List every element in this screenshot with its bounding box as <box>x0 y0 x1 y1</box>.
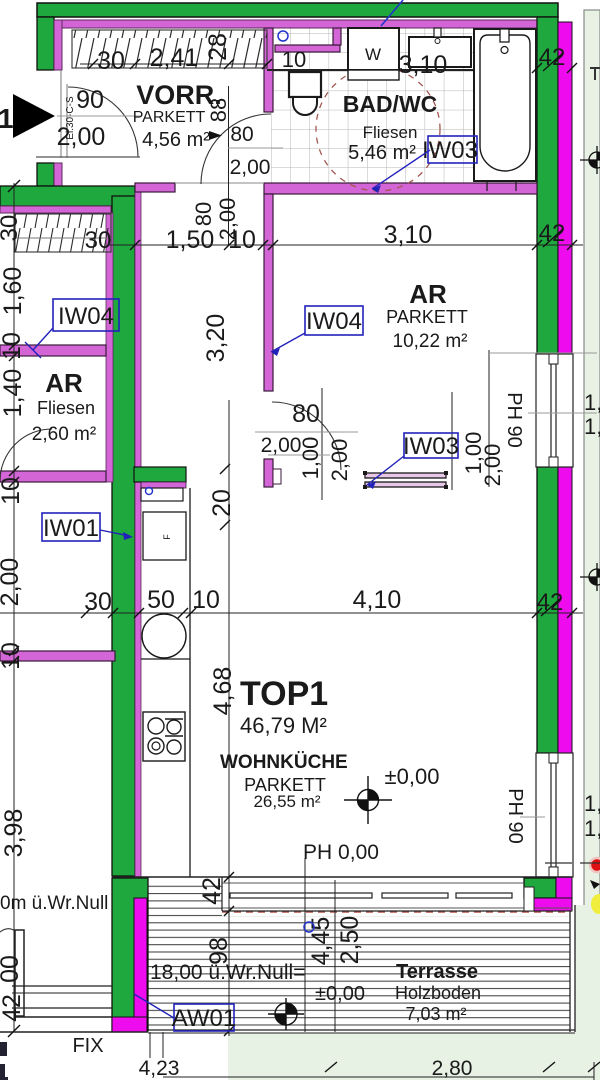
svg-text:50: 50 <box>147 586 175 614</box>
svg-text:IW04: IW04 <box>306 308 362 335</box>
svg-text:2,60 m²: 2,60 m² <box>32 424 96 445</box>
svg-text:30: 30 <box>97 47 125 75</box>
svg-text:2,00: 2,00 <box>327 439 352 482</box>
svg-text:1,: 1, <box>584 414 600 439</box>
svg-text:FIX: FIX <box>72 1035 103 1057</box>
svg-text:80: 80 <box>292 400 320 428</box>
svg-text:TOP1: TOP1 <box>240 675 328 713</box>
svg-text:42: 42 <box>537 589 564 616</box>
svg-text:3,10: 3,10 <box>399 51 448 79</box>
svg-text:2,00: 2,00 <box>0 558 24 607</box>
svg-text:7,03 m²: 7,03 m² <box>405 1004 466 1024</box>
svg-text:10: 10 <box>192 586 220 614</box>
svg-text:28: 28 <box>204 33 232 61</box>
svg-text:5,46 m²: 5,46 m² <box>348 142 416 164</box>
svg-text:PH 90: PH 90 <box>503 392 525 448</box>
svg-text:30: 30 <box>84 588 112 616</box>
svg-text:2,00: 2,00 <box>230 156 271 179</box>
svg-text:Holzboden: Holzboden <box>395 983 481 1003</box>
svg-text:42: 42 <box>539 220 566 247</box>
svg-text:4,10: 4,10 <box>353 586 402 614</box>
svg-text:88: 88 <box>206 98 231 122</box>
svg-text:30: 30 <box>0 215 23 242</box>
svg-text:30: 30 <box>85 227 112 254</box>
svg-text:BAD/WC: BAD/WC <box>343 91 438 117</box>
svg-text:IW03: IW03 <box>422 137 478 164</box>
svg-text:2,41: 2,41 <box>150 44 199 72</box>
svg-text:PARKETT: PARKETT <box>133 109 206 126</box>
svg-text:90: 90 <box>76 86 104 114</box>
svg-text:Terrasse: Terrasse <box>396 961 478 983</box>
svg-text:10: 10 <box>282 47 306 72</box>
svg-text:1,00: 1,00 <box>298 437 323 480</box>
svg-text:4,56 m²: 4,56 m² <box>142 129 210 151</box>
svg-text:20: 20 <box>208 489 236 517</box>
svg-text:AR: AR <box>45 368 83 398</box>
svg-text:26,55 m²: 26,55 m² <box>253 792 320 811</box>
svg-text:3,98: 3,98 <box>0 809 28 858</box>
svg-text:AW01: AW01 <box>172 1005 236 1032</box>
svg-text:2,00: 2,00 <box>480 444 505 487</box>
svg-text:10: 10 <box>228 226 256 254</box>
svg-text:42: 42 <box>539 44 566 71</box>
svg-text:W: W <box>365 45 381 64</box>
svg-text:IW01: IW01 <box>43 515 99 542</box>
svg-text:3,10: 3,10 <box>384 221 433 249</box>
svg-text:42: 42 <box>0 994 26 1022</box>
svg-text:2,00: 2,00 <box>261 434 302 457</box>
svg-text:WOHNKÜCHE: WOHNKÜCHE <box>220 752 348 773</box>
svg-text:F: F <box>162 534 172 540</box>
svg-text:AR: AR <box>409 279 447 309</box>
svg-text:1,60: 1,60 <box>0 267 27 316</box>
svg-text:2,50: 2,50 <box>336 916 364 965</box>
svg-text:0m ü.Wr.Null: 0m ü.Wr.Null <box>0 893 108 914</box>
svg-text:10: 10 <box>0 642 25 670</box>
svg-text:4,23: 4,23 <box>139 1057 180 1080</box>
svg-text:PH 0,00: PH 0,00 <box>303 841 379 864</box>
svg-text:42: 42 <box>198 877 226 905</box>
svg-text:PH 90: PH 90 <box>504 788 526 844</box>
svg-text:4,45: 4,45 <box>307 917 335 966</box>
svg-text:±0,00: ±0,00 <box>315 983 365 1005</box>
svg-text:1,: 1, <box>584 390 600 415</box>
svg-text:±0,00: ±0,00 <box>385 764 440 789</box>
svg-text:98: 98 <box>205 937 233 965</box>
svg-text:IW03: IW03 <box>403 433 459 460</box>
svg-text:00: 00 <box>0 955 24 983</box>
svg-text:3,20: 3,20 <box>202 314 230 363</box>
svg-text:PARKETT: PARKETT <box>386 307 468 327</box>
svg-text:80: 80 <box>191 202 216 226</box>
svg-text:1,: 1, <box>584 816 600 841</box>
svg-text:Fliesen: Fliesen <box>363 123 418 142</box>
svg-text:10,22 m²: 10,22 m² <box>393 331 468 352</box>
svg-text:4,68: 4,68 <box>209 667 237 716</box>
svg-text:80: 80 <box>230 123 253 146</box>
svg-text:46,79 M²: 46,79 M² <box>240 713 327 738</box>
svg-text:10: 10 <box>0 332 26 360</box>
svg-text:2,00: 2,00 <box>57 123 106 151</box>
svg-text:IW04: IW04 <box>58 303 114 330</box>
svg-text:1,50: 1,50 <box>166 226 215 254</box>
svg-text:Fliesen: Fliesen <box>37 398 95 418</box>
svg-text:2,80: 2,80 <box>432 1057 473 1080</box>
svg-text:1,: 1, <box>584 791 600 816</box>
svg-text:1,40: 1,40 <box>0 369 27 418</box>
svg-text:1: 1 <box>0 103 14 134</box>
svg-text:10: 10 <box>0 477 25 505</box>
